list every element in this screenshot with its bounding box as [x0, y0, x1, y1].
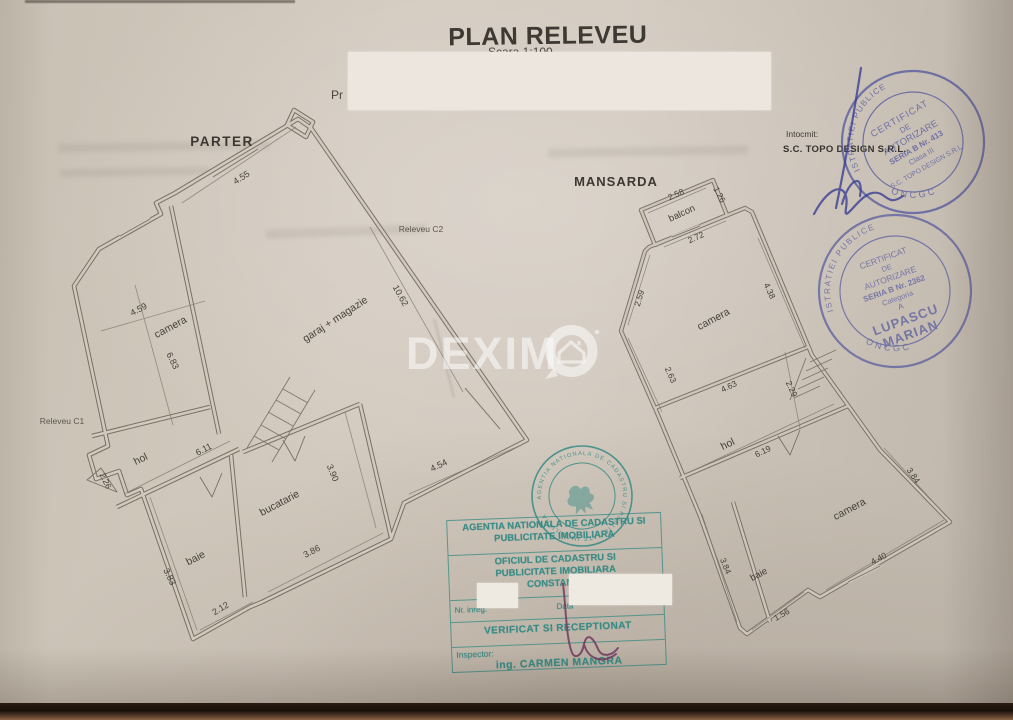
parter-labels: PARTER Releveu C1 Releveu C2 4.55 4.59 c…	[40, 134, 449, 617]
deximo-watermark: DEXIM	[406, 328, 599, 379]
svg-text:ONCGC: ONCGC	[862, 323, 914, 365]
dim-parter-bucatarie-w: 3.86	[302, 543, 322, 560]
scanned-floor-plan-photo: PLAN RELEVEU IMOBIL Scara 1:100 Pr Intoc…	[0, 0, 1013, 720]
photo-shadow-right	[0, 0, 1013, 720]
svg-text:MINISTERUL ADMINISTRATIEI PUBL: MINISTERUL ADMINISTRATIEI PUBLICE	[44, 11, 916, 599]
parter-walls-outer	[74, 110, 527, 639]
mansarda-stairs	[790, 350, 836, 400]
room-parter-baie: baie	[184, 548, 207, 568]
mansarda-dimension-lines	[628, 188, 946, 630]
stamp-agency-lines: AGENTIA NATIONALA DE CADASTRU SI PUBLICI…	[447, 513, 661, 556]
stamp-inspector-name: ing. CARMEN MANGRA	[453, 653, 666, 673]
seal1-bottom-text: ONCGC	[887, 167, 940, 215]
bleed-through-text	[266, 224, 426, 239]
room-parter-garaj: garaj + magazie	[301, 294, 371, 345]
watermark-text: DEXIM	[406, 328, 559, 379]
dim-parter-hol-len: 6.11	[194, 441, 214, 458]
cadastru-rect-stamp: AGENTIA NATIONALA DE CADASTRU SI PUBLICI…	[446, 512, 667, 673]
dim-parter-entry: 2.26	[98, 471, 114, 490]
stamp-inspector-label: Inspector:	[456, 648, 494, 659]
seal2-line5: Categoria	[881, 288, 915, 308]
prepared-by-label: Intocmit:	[786, 129, 818, 139]
parter-plan: PARTER Releveu C1 Releveu C2 4.55 4.59 c…	[40, 110, 527, 639]
plan-linework: PARTER Releveu C1 Releveu C2 4.55 4.59 c…	[0, 0, 1013, 720]
svg-text:MINISTERUL ADMINISTRATIEI PUBL: MINISTERUL ADMINISTRATIEI PUBLICE	[0, 10, 897, 597]
dim-parter-garaj-bottom: 4.54	[429, 457, 449, 474]
room-parter-camera: camera	[152, 314, 189, 341]
seal2-line1: CERTIFICAT	[858, 245, 908, 271]
dim-mansarda-baie-h: 3.84	[718, 556, 734, 575]
dim-mansarda-hol-len: 6.19	[753, 443, 772, 459]
seal1-ring-text: MINISTERUL ADMINISTRATIEI PUBLICE	[44, 11, 916, 599]
mansarda-labels: MANSARDA balcon 2.58 1.26 2.72 camera 4.…	[574, 174, 922, 623]
dim-parter-camera-h: 6.83	[164, 351, 181, 371]
room-mansarda-camera-sus: camera	[695, 306, 732, 333]
parter-door-swings	[87, 436, 305, 497]
stamp-line: AGENTIA NATIONALA DE CADASTRU SI	[447, 515, 660, 536]
stamp-verified-row: VERIFICAT SI RECEPTIONAT	[451, 615, 665, 648]
stamp-data-label: Data	[556, 601, 573, 611]
watermark-magnifier-handle	[545, 368, 558, 379]
dim-mansarda-baie-w: 1.56	[772, 606, 792, 623]
room-parter-bucatarie: bucatarie	[258, 488, 302, 519]
dim-mansarda-left-mid: 2.63	[663, 365, 679, 384]
cadastru-round-seal: AGENTIA NATIONALA DE CADASTRU SI PUBLICI…	[523, 437, 642, 556]
dim-mansarda-balcon-h: 1.26	[711, 185, 728, 205]
bleed-through-text	[60, 167, 210, 178]
partial-redacted-text: Pr	[331, 88, 343, 102]
parter-walls-inner	[74, 110, 527, 639]
seal1-line1: CERTIFICAT	[869, 98, 931, 140]
scale-note: Scara 1:100	[488, 45, 553, 59]
room-mansarda-baie: baie	[748, 566, 769, 584]
seal1-line6: S.C. TOPO DESIGN S.R.L.	[890, 143, 965, 191]
cadastru-eagle-emblem	[564, 482, 597, 516]
dim-parter-baie-w: 2.12	[210, 600, 230, 618]
dim-mansarda-mid-w: 4.63	[719, 378, 738, 394]
mansarda-door-swings	[778, 430, 800, 455]
mansarda-plan: MANSARDA balcon 2.58 1.26 2.72 camera 4.…	[574, 174, 950, 634]
room-parter-hol: hol	[132, 451, 150, 468]
stamp-office-lines: OFICIUL DE CADASTRU SI PUBLICITATE IMOBI…	[449, 548, 664, 601]
dim-mansarda-left-up: 2.59	[632, 288, 646, 307]
room-mansarda-camera-jos: camera	[831, 496, 868, 523]
stamp-line: PUBLICITATE IMOBILIARA	[448, 527, 661, 548]
seal2-line4: SERIA B Nr. 2362	[862, 273, 927, 304]
photo-shadow-bottom	[0, 0, 1013, 720]
parter-stairs	[247, 377, 315, 462]
seal1-line3: AUTORIZARE	[882, 118, 940, 158]
svg-text:ONCGC: ONCGC	[887, 167, 940, 215]
room-mansarda-balcon: balcon	[667, 203, 697, 225]
releveu-c2-label: Releveu C2	[399, 224, 444, 234]
stamp-nr-label: Nr. inreg.	[454, 605, 487, 615]
stamp-line: PUBLICITATE IMOBILIARA	[449, 562, 662, 582]
watermark-magnifier-ring	[551, 330, 593, 372]
svg-text:AGENTIA NATIONALA DE CADASTRU: AGENTIA NATIONALA DE CADASTRU SI PUBLICI…	[529, 443, 636, 550]
dim-mansarda-camera-w: 4.40	[869, 550, 889, 567]
dim-parter-baie-h: 3.83	[161, 567, 178, 587]
dim-mansarda-stair: 2.29	[784, 379, 800, 398]
watermark-dot	[595, 330, 599, 334]
dim-parter-garaj-len: 10.62	[391, 283, 411, 308]
photo-shadow-left	[0, 0, 1013, 720]
seal2-ring-text: MINISTERUL ADMINISTRATIEI PUBLICE	[0, 10, 897, 597]
page-title: PLAN RELEVEU IMOBIL	[402, 20, 695, 82]
seal1-line2: DE	[898, 122, 912, 135]
redaction-box-date	[569, 574, 672, 605]
dim-parter-bucatarie-h: 3.90	[325, 463, 341, 483]
photo-edge-top	[25, 0, 295, 3]
minister-seal-1: MINISTERUL ADMINISTRATIEI PUBLICE ONCGC …	[44, 0, 1010, 662]
signature-purple	[563, 584, 618, 659]
mansarda-title: MANSARDA	[574, 174, 658, 189]
dim-mansarda-top-w: 2.72	[686, 229, 705, 245]
seal2-name2: MARIAN	[881, 317, 941, 351]
mansarda-walls-inner	[621, 180, 950, 634]
seal2-line3: AUTORIZARE	[863, 264, 918, 292]
bleed-through-text	[548, 145, 748, 157]
dim-mansarda-balcon-w: 2.58	[666, 186, 685, 202]
parter-dimension-lines	[101, 127, 519, 630]
house-icon	[559, 341, 584, 362]
seal2-name1: LUPASCU	[871, 301, 941, 339]
dim-parter-camera-w: 4.59	[129, 301, 149, 318]
room-mansarda-hol: hol	[719, 436, 737, 453]
cadastru-seal-ring-text: AGENTIA NATIONALA DE CADASTRU SI PUBLICI…	[529, 443, 636, 550]
stamp-line: CONSTANTA	[450, 574, 663, 594]
parter-title: PARTER	[190, 134, 254, 149]
mansarda-walls-outer	[621, 180, 950, 634]
table-edge-strip	[0, 703, 1013, 720]
stamp-registration-row: Nr. inreg. Data	[450, 593, 664, 623]
prepared-by-company: S.C. TOPO DESIGN S.R.L.	[783, 144, 906, 155]
stamp-line: OFICIUL DE CADASTRU SI	[449, 550, 662, 570]
dim-mansarda-right-up: 4.38	[762, 281, 778, 300]
seal1-line4: SERIA B Nr. 413	[888, 128, 945, 166]
seal2-line6: A	[897, 301, 906, 312]
signature-blue	[814, 68, 903, 214]
dim-mansarda-camera-h: 3.84	[905, 466, 923, 486]
stamp-inspector-row: Inspector: ing. CARMEN MANGRA	[452, 640, 666, 678]
mansarda-openings	[672, 226, 880, 582]
releveu-c1-label: Releveu C1	[40, 416, 85, 426]
bleed-through-text	[58, 140, 270, 153]
seal2-line2: DE	[880, 262, 893, 274]
dim-parter-top: 4.55	[231, 169, 251, 187]
seal2-bottom-text: ONCGC	[862, 323, 914, 365]
seal1-line5: Clasa III	[907, 146, 935, 168]
minister-seal-2: MINISTERUL ADMINISTRATIEI PUBLICE ONCGC …	[0, 0, 992, 670]
parter-openings	[120, 149, 500, 429]
redaction-box-reg-number	[477, 583, 518, 608]
redaction-box-header	[348, 52, 771, 110]
paper-crease	[433, 319, 454, 397]
